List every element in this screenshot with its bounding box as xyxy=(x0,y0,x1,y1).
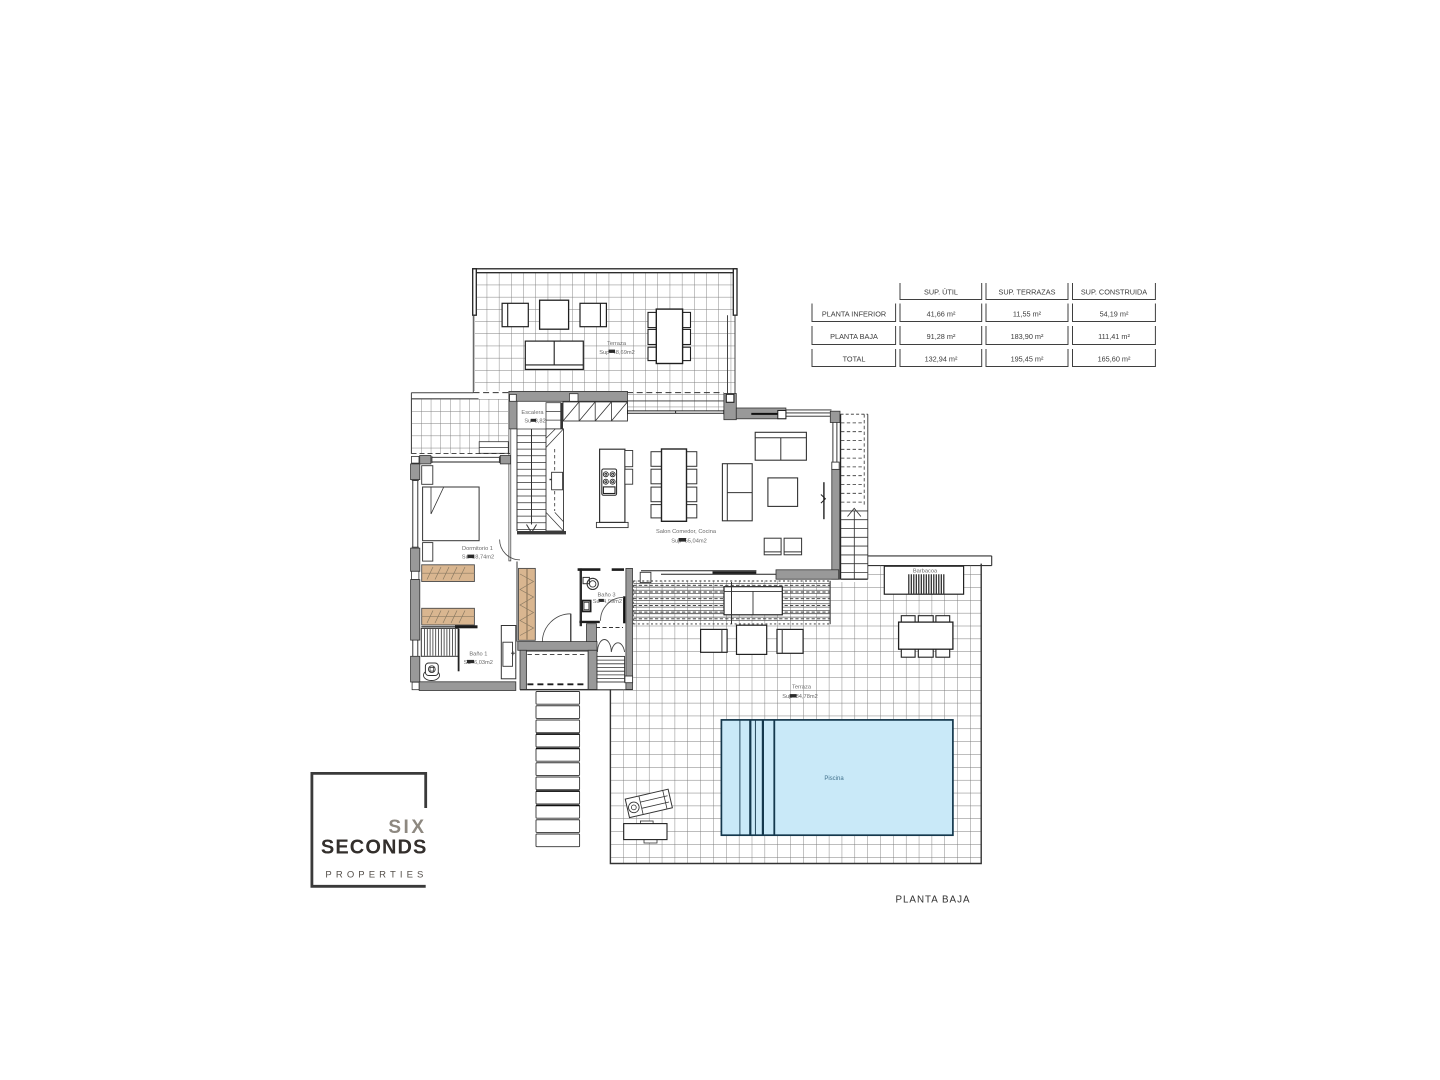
svg-text:Baño 1: Baño 1 xyxy=(469,652,487,658)
svg-text:Barbacoa: Barbacoa xyxy=(913,569,938,575)
svg-text:Sup=48,69m2: Sup=48,69m2 xyxy=(599,350,635,356)
svg-text:SECONDS: SECONDS xyxy=(321,837,428,859)
svg-text:Piscina: Piscina xyxy=(824,776,844,782)
svg-text:Salon Comedor, Cocina: Salon Comedor, Cocina xyxy=(656,529,717,535)
svg-text:Escalera: Escalera xyxy=(521,410,544,416)
svg-text:TOTAL: TOTAL xyxy=(843,355,866,364)
svg-text:111,41 m²: 111,41 m² xyxy=(1098,332,1130,341)
svg-text:Sup=65,04m2: Sup=65,04m2 xyxy=(671,539,707,545)
svg-text:91,28 m²: 91,28 m² xyxy=(927,332,956,341)
svg-text:195,45 m²: 195,45 m² xyxy=(1011,355,1044,364)
svg-text:SIX: SIX xyxy=(388,817,426,838)
svg-text:Terraza: Terraza xyxy=(792,685,812,691)
svg-text:183,90 m²: 183,90 m² xyxy=(1011,332,1044,341)
svg-text:Baño 3: Baño 3 xyxy=(597,592,615,598)
svg-text:PLANTA INFERIOR: PLANTA INFERIOR xyxy=(822,310,886,319)
svg-text:Terraza: Terraza xyxy=(607,341,627,347)
svg-text:Dormitorio 1: Dormitorio 1 xyxy=(462,546,493,552)
svg-text:PLANTA BAJA: PLANTA BAJA xyxy=(830,332,878,341)
svg-text:SUP. CONSTRUIDA: SUP. CONSTRUIDA xyxy=(1081,288,1147,297)
svg-text:SUP. ÚTIL: SUP. ÚTIL xyxy=(924,288,958,297)
svg-text:132,94 m²: 132,94 m² xyxy=(925,355,958,364)
svg-text:Sup=84,78m2: Sup=84,78m2 xyxy=(782,694,818,700)
svg-text:PLANTA BAJA: PLANTA BAJA xyxy=(895,895,970,906)
svg-text:41,66 m²: 41,66 m² xyxy=(927,310,956,319)
svg-text:SUP. TERRAZAS: SUP. TERRAZAS xyxy=(999,288,1056,297)
svg-text:Su=18,74m2: Su=18,74m2 xyxy=(462,555,494,561)
svg-text:165,60 m²: 165,60 m² xyxy=(1098,355,1131,364)
svg-text:54,19 m²: 54,19 m² xyxy=(1100,310,1129,319)
svg-text:11,55 m²: 11,55 m² xyxy=(1013,310,1042,319)
svg-text:PROPERTIES: PROPERTIES xyxy=(325,870,427,881)
